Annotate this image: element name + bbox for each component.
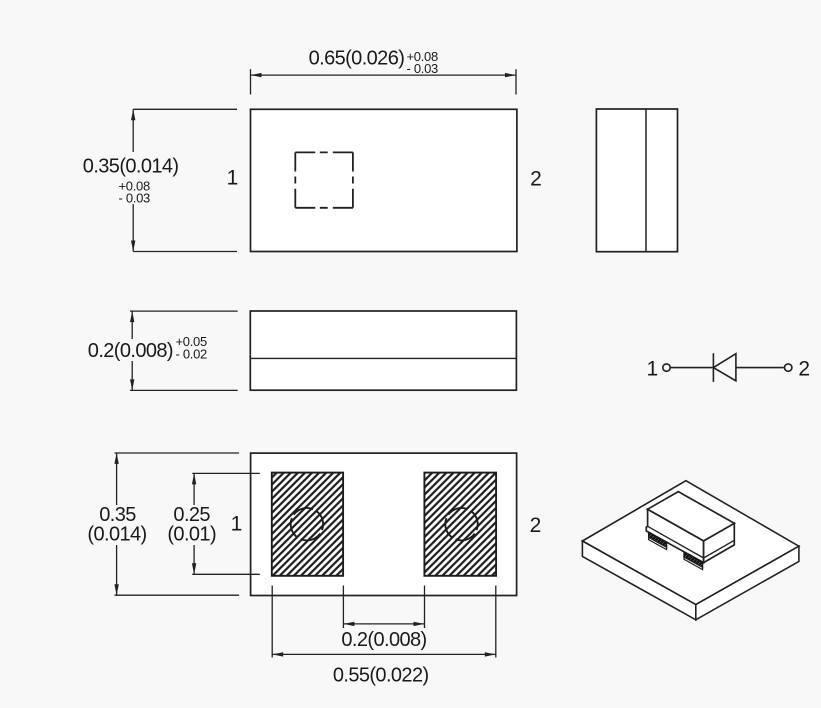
svg-text:2: 2 [530, 168, 542, 191]
svg-text:1: 1 [227, 167, 239, 190]
svg-text:1: 1 [231, 513, 243, 536]
svg-text:- 0.03: - 0.03 [407, 61, 439, 76]
svg-text:(0.014): (0.014) [87, 524, 146, 546]
svg-text:0.2(0.008): 0.2(0.008) [88, 340, 173, 362]
svg-text:0.55(0.022): 0.55(0.022) [333, 665, 429, 687]
svg-text:2: 2 [798, 358, 810, 381]
svg-text:- 0.03: - 0.03 [119, 191, 151, 206]
svg-text:1: 1 [646, 357, 658, 380]
svg-text:0.2(0.008): 0.2(0.008) [341, 629, 426, 651]
svg-text:0.65(0.026): 0.65(0.026) [309, 48, 405, 70]
svg-text:2: 2 [530, 514, 542, 537]
svg-text:- 0.02: - 0.02 [176, 347, 208, 362]
svg-text:0.35(0.014): 0.35(0.014) [83, 155, 179, 177]
svg-text:(0.01): (0.01) [167, 524, 216, 546]
